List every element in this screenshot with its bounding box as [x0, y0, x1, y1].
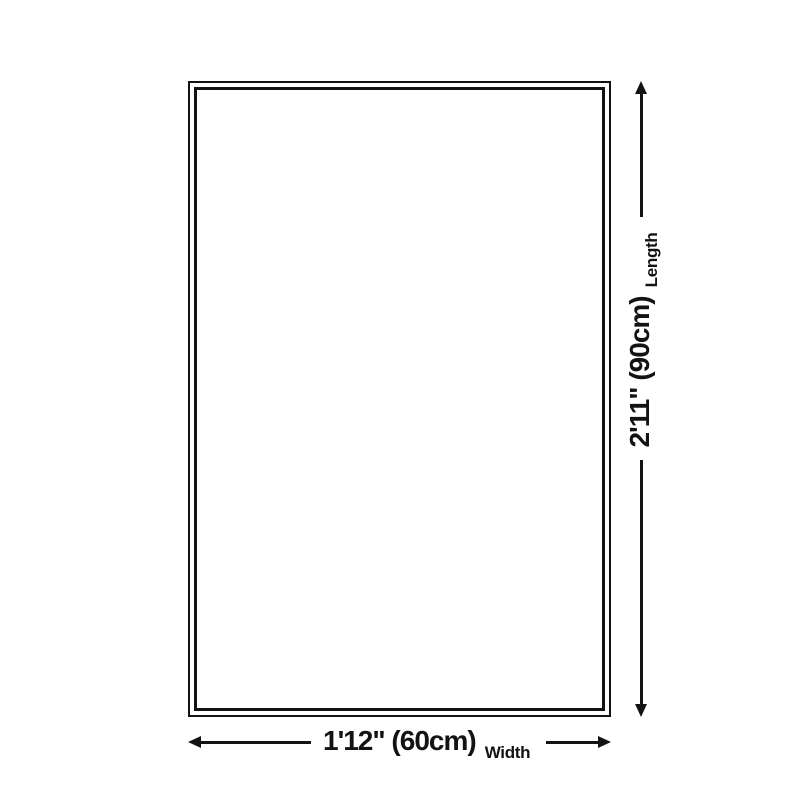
product-rectangle-outer-border [188, 81, 611, 717]
width-dimension: 1'12" (60cm) Width [188, 722, 611, 762]
width-arrow-line [201, 741, 311, 744]
length-arrow-top-segment [635, 81, 647, 217]
length-value-label: 2'11" (90cm) [626, 296, 654, 447]
length-arrow-bottom-segment [635, 460, 647, 717]
length-arrow-line [640, 94, 643, 217]
width-arrow-line [546, 741, 598, 744]
size-diagram: 2'11" (90cm) Length 1'12" (60cm) Width [0, 0, 800, 800]
arrow-left-icon [188, 736, 201, 748]
length-dimension-row: 2'11" (90cm) Length [621, 81, 661, 717]
length-arrow-line [640, 460, 643, 704]
arrow-right-icon [598, 736, 611, 748]
product-rectangle-inner-border [194, 87, 605, 711]
width-value-label: 1'12" (60cm) [323, 727, 476, 755]
arrow-down-icon [635, 704, 647, 717]
length-dimension: 2'11" (90cm) Length [621, 81, 661, 717]
length-caption-label: Length [643, 233, 660, 288]
width-arrow-right-segment [546, 736, 611, 748]
width-arrow-left-segment [188, 736, 311, 748]
width-caption-label: Width [485, 744, 531, 761]
arrow-up-icon [635, 81, 647, 94]
